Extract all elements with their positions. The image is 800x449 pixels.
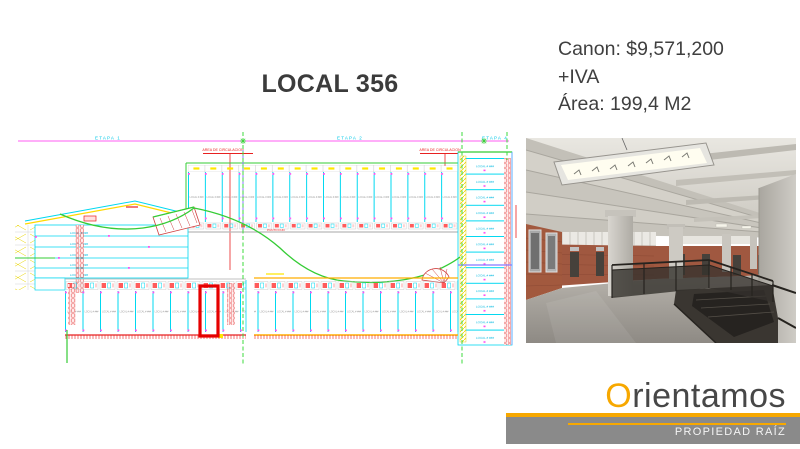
- ramp-strip: [153, 207, 200, 235]
- top-unit-band: [186, 150, 460, 232]
- iva-line: +IVA: [558, 64, 724, 92]
- right-unit-strip: [458, 152, 516, 345]
- corridor-label: PUNTO FIJO: [267, 228, 285, 232]
- brand-initial: O: [605, 377, 632, 415]
- price-block: Canon: $9,571,200 +IVA Área: 199,4 M2: [558, 36, 724, 119]
- floorplan-drawing: LOCAL # ###: [8, 128, 518, 375]
- brand-name: rientamos: [632, 377, 786, 415]
- etapa-label-2: ETAPA 2: [337, 136, 363, 141]
- canon-line: Canon: $9,571,200: [558, 36, 724, 64]
- logo-bar: PROPIEDAD RAÍZ: [506, 417, 800, 444]
- stage-line: ETAPA 1 ETAPA 2 ETAPA 4: [18, 136, 509, 145]
- page-title: LOCAL 356: [228, 70, 432, 99]
- brand-logo: Orientamos: [605, 377, 786, 416]
- lower-unit-band: [65, 278, 458, 339]
- circulation-label: AREA DE CIRCULACION: [202, 148, 244, 152]
- slide-canvas: LOCAL 356 Canon: $9,571,200 +IVA Área: 1…: [0, 0, 800, 449]
- logo-bar-underline: [568, 423, 786, 425]
- etapa-label-1: ETAPA 1: [95, 136, 121, 141]
- brand-tagline: PROPIEDAD RAÍZ: [675, 426, 786, 438]
- area-line: Área: 199,4 M2: [558, 91, 724, 119]
- left-brick-wall: [526, 224, 562, 300]
- stage-marker-icon: [481, 138, 487, 144]
- property-photo: [526, 138, 796, 343]
- etapa-label-3: ETAPA 4: [482, 136, 508, 141]
- circulation-label: AREA DE CIRCULACION: [419, 148, 461, 152]
